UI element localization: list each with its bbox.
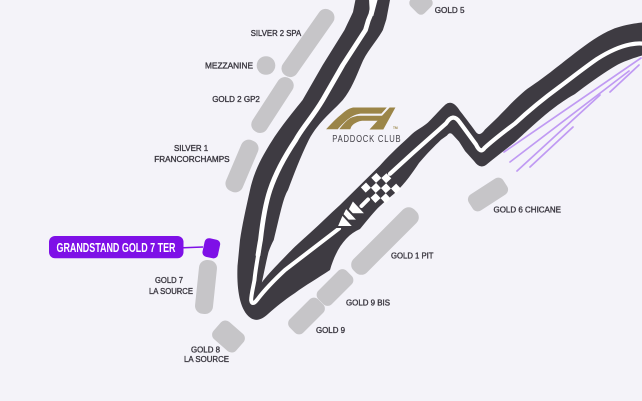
svg-text:GOLD 7: GOLD 7 bbox=[155, 275, 183, 285]
svg-text:SILVER 1: SILVER 1 bbox=[174, 143, 209, 153]
svg-text:SILVER 2 SPA: SILVER 2 SPA bbox=[251, 28, 302, 38]
svg-text:LA SOURCE: LA SOURCE bbox=[184, 354, 229, 364]
svg-text:GOLD 6 CHICANE: GOLD 6 CHICANE bbox=[494, 204, 562, 214]
svg-text:GOLD 8: GOLD 8 bbox=[191, 344, 220, 354]
svg-text:TM: TM bbox=[393, 126, 398, 130]
svg-text:MEZZANINE: MEZZANINE bbox=[205, 61, 253, 71]
svg-text:GOLD 9: GOLD 9 bbox=[316, 325, 345, 335]
svg-text:FRANCORCHAMPS: FRANCORCHAMPS bbox=[154, 154, 230, 164]
svg-text:GOLD 5: GOLD 5 bbox=[435, 5, 465, 15]
svg-text:GRANDSTAND GOLD 7 TER: GRANDSTAND GOLD 7 TER bbox=[57, 240, 176, 255]
svg-text:PADDOCK CLUB: PADDOCK CLUB bbox=[332, 134, 401, 145]
svg-text:GOLD 1 PIT: GOLD 1 PIT bbox=[391, 251, 434, 261]
svg-text:LA SOURCE: LA SOURCE bbox=[149, 286, 193, 296]
svg-text:GOLD 2 GP2: GOLD 2 GP2 bbox=[212, 94, 260, 104]
svg-text:GOLD 9 BIS: GOLD 9 BIS bbox=[346, 298, 390, 308]
